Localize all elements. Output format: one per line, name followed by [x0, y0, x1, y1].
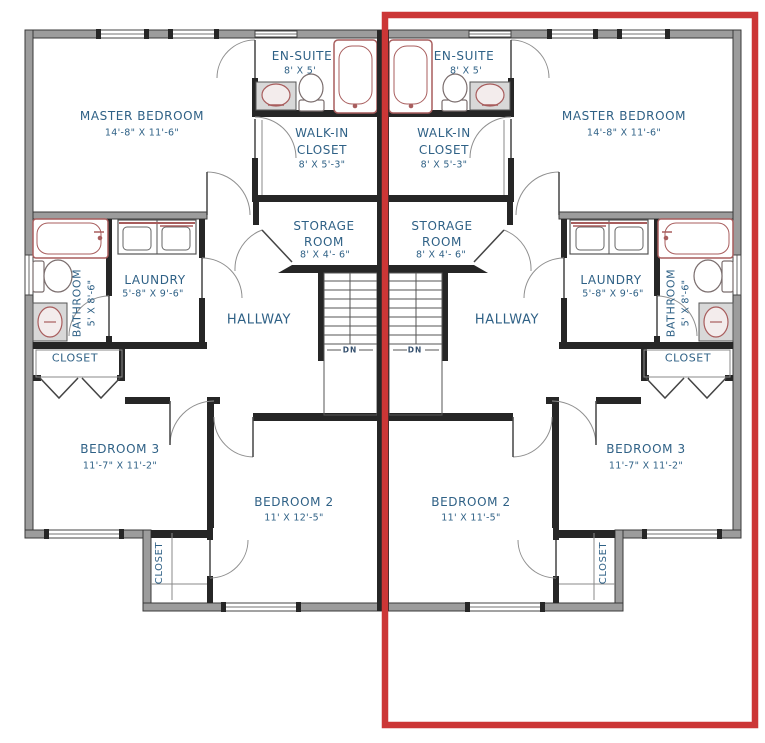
room-label-storage-left-line1: STORAGE	[293, 220, 354, 232]
room-label-bathroom-right: BATHROOM	[666, 269, 677, 337]
room-dims-bedroom3-left: 11'-7" X 11'-2"	[83, 461, 157, 471]
room-dims-laundry-left: 5'-8" X 9'-6"	[122, 289, 183, 299]
room-label-master-bedroom-right: MASTER BEDROOM	[562, 110, 686, 122]
room-dims-walkin-closet-left: 8' X 5'-3"	[299, 160, 346, 170]
room-label-walkin-closet-left-line1: WALK-IN	[295, 127, 349, 139]
room-label-walkin-closet-right-line2: CLOSET	[419, 144, 469, 156]
room-dims-storage-left: 8' X 4'- 6"	[300, 250, 350, 260]
room-label-hall-closet-left: CLOSET	[52, 353, 98, 364]
stairs-dn-label-left: DN	[343, 346, 358, 354]
room-dims-bedroom2-right: 11' X 11'-5"	[441, 513, 500, 523]
room-dims-laundry-right: 5'-8" X 9'-6"	[582, 289, 643, 299]
room-label-bedroom2-left: BEDROOM 2	[254, 496, 334, 508]
room-label-storage-right-line1: STORAGE	[411, 220, 472, 232]
room-label-ensuite-left: EN-SUITE	[272, 50, 333, 62]
room-label-walkin-closet-right-line1: WALK-IN	[417, 127, 471, 139]
room-label-master-bedroom-left: MASTER BEDROOM	[80, 110, 204, 122]
room-label-ensuite-right: EN-SUITE	[434, 50, 495, 62]
room-label-hallway-right: HALLWAY	[475, 314, 539, 327]
room-label-laundry-right: LAUNDRY	[580, 274, 641, 286]
room-label-laundry-left: LAUNDRY	[124, 274, 185, 286]
room-label-hallway-left: HALLWAY	[227, 314, 291, 327]
room-dims-master-bedroom-right: 14'-8" X 11'-6"	[587, 128, 661, 138]
room-label-bedroom3-left: BEDROOM 3	[80, 443, 160, 455]
room-label-bedroom2-closet-left: CLOSET	[155, 542, 165, 584]
room-dims-bedroom3-right: 11'-7" X 11'-2"	[609, 461, 683, 471]
room-dims-bedroom2-left: 11' X 12'-5"	[264, 513, 323, 523]
room-label-storage-right-line2: ROOM	[422, 236, 462, 248]
room-dims-bathroom-left: 5' X 8'-6"	[87, 280, 97, 327]
room-dims-ensuite-left: 8' X 5'	[284, 66, 316, 76]
stairs-dn-label-right: DN	[408, 346, 423, 354]
room-dims-walkin-closet-right: 8' X 5'-3"	[421, 160, 468, 170]
room-label-bedroom2-closet-right: CLOSET	[599, 542, 609, 584]
room-label-bathroom-left: BATHROOM	[72, 269, 83, 337]
room-label-walkin-closet-left-line2: CLOSET	[297, 144, 347, 156]
room-label-bedroom2-right: BEDROOM 2	[431, 496, 511, 508]
room-dims-storage-right: 8' X 4'- 6"	[416, 250, 466, 260]
room-dims-ensuite-right: 8' X 5'	[450, 66, 482, 76]
room-dims-master-bedroom-left: 14'-8" X 11'-6"	[105, 128, 179, 138]
duplex-floor-plan: EN-SUITE 8' X 5' MASTER BEDROOM 14'-8" X…	[0, 0, 765, 743]
room-dims-bathroom-right: 5' X 8'-6"	[681, 280, 691, 327]
room-label-bedroom3-right: BEDROOM 3	[606, 443, 686, 455]
room-label-storage-left-line2: ROOM	[304, 236, 344, 248]
room-label-hall-closet-right: CLOSET	[665, 353, 711, 364]
